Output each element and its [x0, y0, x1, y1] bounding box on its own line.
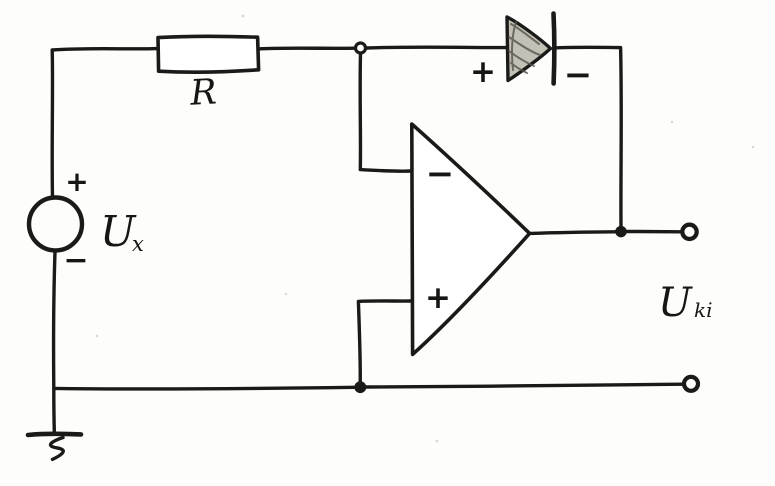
- ground-bar: [28, 434, 81, 435]
- ground-symbol: [28, 434, 81, 460]
- resistor-body: [158, 36, 259, 72]
- output-terminal-bottom: [684, 377, 698, 391]
- diode: + −: [470, 14, 592, 96]
- junction-node-open: [356, 43, 366, 53]
- speckle: [96, 335, 98, 337]
- speckle: [285, 293, 287, 295]
- wire-opamp-output: [531, 232, 616, 234]
- opamp-inverting-sign: −: [426, 154, 455, 194]
- output-label: U ki: [658, 280, 713, 326]
- speckle: [752, 146, 754, 148]
- output-label-name: U: [658, 280, 693, 326]
- source-plus-sign: +: [65, 165, 88, 198]
- resistor: R: [158, 36, 259, 113]
- junction-dot-bottom: [355, 382, 365, 392]
- wire-bottom-rail-left: [54, 387, 355, 389]
- diode-cathode-bar: [554, 14, 555, 84]
- junction-dot-output: [616, 227, 626, 237]
- wire-source-to-ground: [54, 252, 55, 432]
- diode-cathode-minus-sign: −: [564, 55, 593, 95]
- wire-resistor-to-junction: [260, 48, 355, 49]
- voltage-source: + − U x: [29, 165, 144, 278]
- source-label-subscript: x: [132, 232, 144, 256]
- speckle: [242, 15, 245, 18]
- output-terminal-top: [682, 225, 696, 239]
- ground-squiggle: [51, 438, 64, 460]
- wire-noninverting-input: [358, 301, 411, 384]
- wire-junction-to-diode: [366, 47, 506, 48]
- source-minus-sign: −: [63, 243, 88, 278]
- output-label-subscript: ki: [694, 298, 713, 322]
- wire-inverting-input: [360, 54, 410, 172]
- schematic-page: R + − − +: [0, 0, 775, 486]
- resistor-label: R: [188, 72, 217, 113]
- speckle: [671, 121, 673, 123]
- wire-bottom-rail-right: [366, 384, 683, 387]
- opamp: − +: [412, 124, 530, 354]
- opamp-noninverting-sign: +: [425, 280, 451, 316]
- diode-anode-plus-sign: +: [470, 54, 496, 90]
- circuit-diagram: R + − − +: [0, 0, 775, 486]
- speckle: [436, 440, 439, 443]
